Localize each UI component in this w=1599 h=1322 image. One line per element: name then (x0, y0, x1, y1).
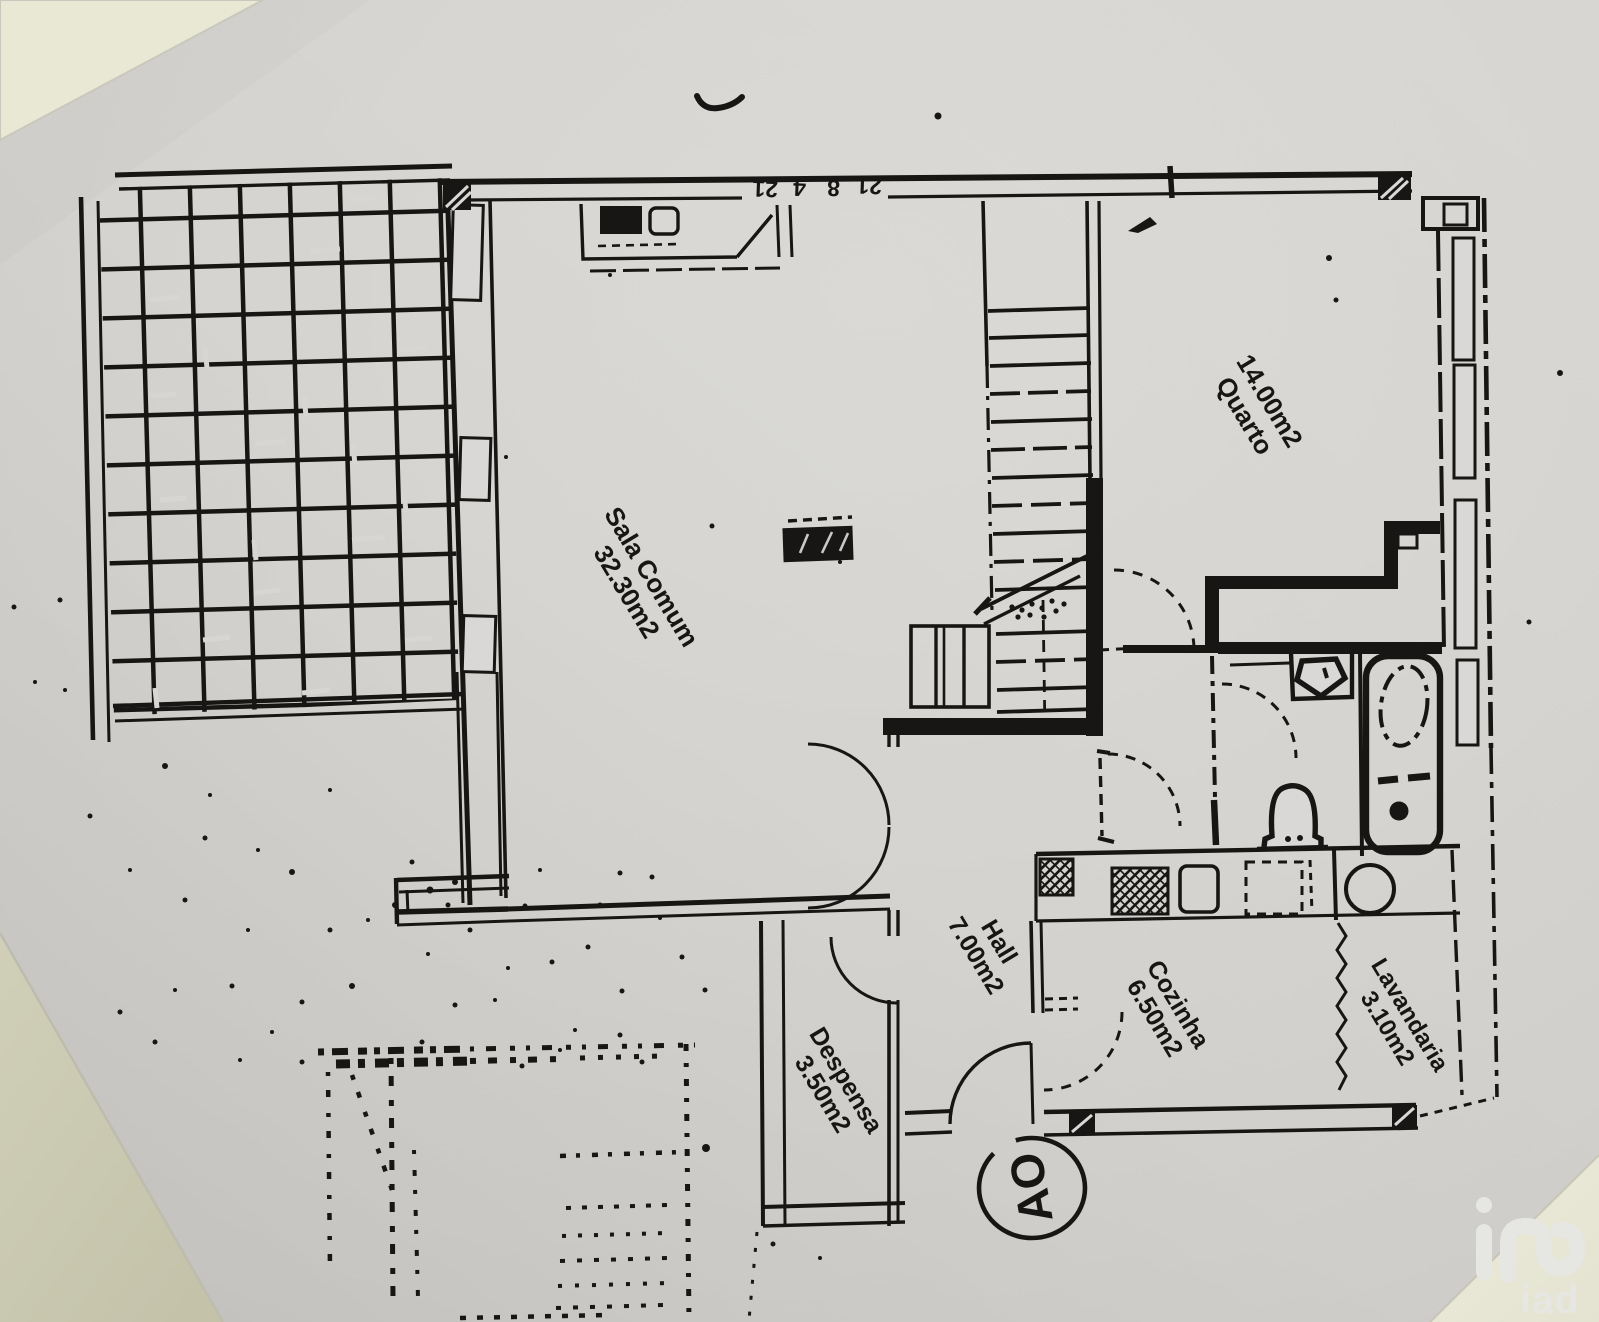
svg-text:21: 21 (752, 176, 779, 203)
svg-text:4: 4 (793, 175, 807, 201)
svg-text:8: 8 (827, 175, 841, 201)
svg-text:iad: iad (1520, 1279, 1579, 1322)
svg-text:21: 21 (856, 173, 883, 200)
